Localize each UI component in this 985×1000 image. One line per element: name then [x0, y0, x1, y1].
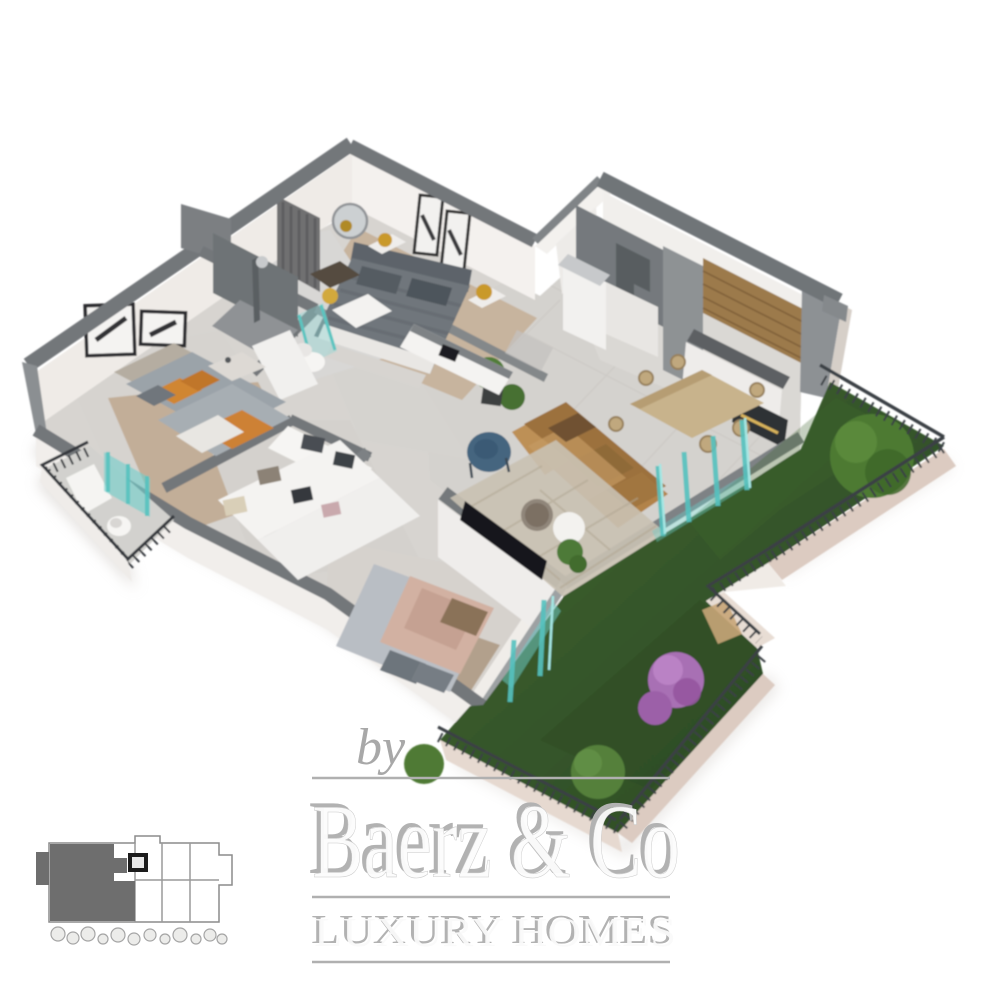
svg-text:LUXURY HOMES: LUXURY HOMES: [314, 909, 676, 955]
svg-text:Baerz & Co: Baerz & Co: [312, 783, 680, 900]
svg-text:by: by: [356, 719, 406, 776]
